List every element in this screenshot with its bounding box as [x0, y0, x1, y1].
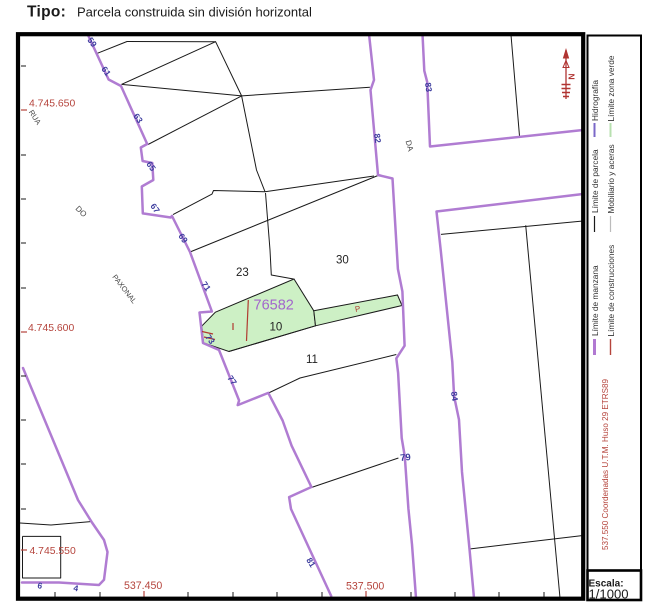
svg-text:83: 83: [423, 82, 434, 93]
svg-text:Límite zona verde: Límite zona verde: [606, 55, 616, 121]
svg-text:4.745.550: 4.745.550: [30, 546, 76, 557]
svg-text:537.450: 537.450: [124, 580, 162, 592]
svg-text:Mobiliario y aceras: Mobiliario y aceras: [606, 144, 616, 213]
svg-text:1/1000: 1/1000: [589, 587, 629, 602]
svg-text:Tipo:: Tipo:: [27, 4, 66, 21]
svg-text:4.745.650: 4.745.650: [29, 99, 75, 110]
svg-text:537.500: 537.500: [346, 581, 384, 593]
svg-text:11: 11: [306, 354, 318, 366]
svg-text:23: 23: [236, 267, 249, 279]
svg-text:Límite de manzana: Límite de manzana: [590, 265, 600, 336]
svg-text:Límite de construcciones: Límite de construcciones: [606, 245, 616, 337]
svg-text:84: 84: [449, 391, 460, 402]
svg-text:N: N: [566, 74, 576, 80]
svg-text:79: 79: [400, 452, 412, 464]
svg-text:76582: 76582: [254, 298, 294, 314]
svg-text:82: 82: [372, 133, 383, 144]
svg-text:Límite de parcela: Límite de parcela: [590, 149, 600, 213]
svg-text:30: 30: [336, 255, 349, 267]
svg-text:537.550 Coordenadas U.T.M. Hus: 537.550 Coordenadas U.T.M. Huso 29 ETRS8…: [601, 379, 610, 550]
svg-text:4.745.600: 4.745.600: [28, 323, 74, 334]
svg-text:Parcela construida sin divisió: Parcela construida sin división horizont…: [77, 5, 312, 20]
svg-text:10: 10: [270, 322, 283, 334]
svg-text:Hidrografía: Hidrografía: [590, 80, 600, 121]
